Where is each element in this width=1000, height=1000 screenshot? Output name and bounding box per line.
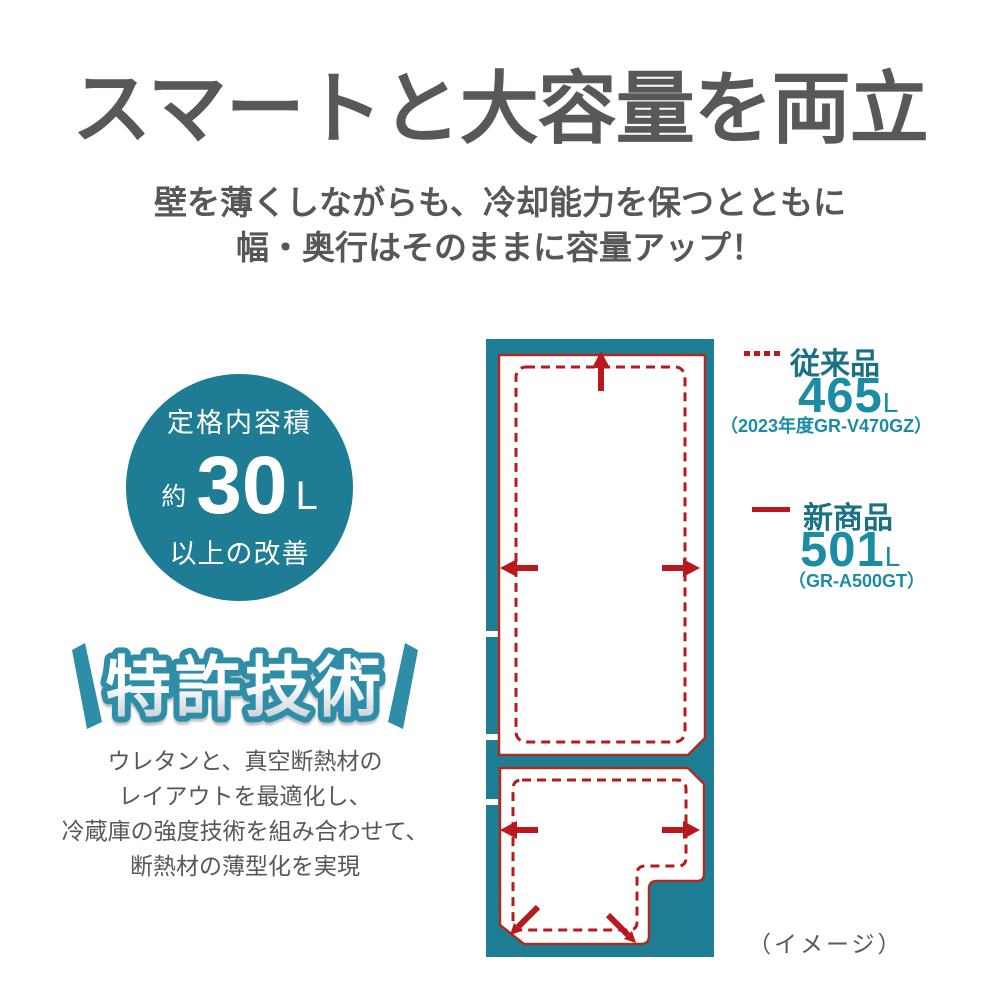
legend-new-solid-line-icon xyxy=(752,507,790,512)
door-seam xyxy=(486,799,498,805)
image-disclaimer: （イメージ） xyxy=(748,925,904,959)
capacity-circle-top-label: 定格内容積 xyxy=(167,401,312,440)
legend-old-model: （2023年度GR-V470GZ） xyxy=(720,412,932,438)
description-line: ウレタンと、真空断熱材の xyxy=(55,744,435,779)
fridge-capacity-diagram xyxy=(486,339,714,957)
capacity-approx-prefix: 約 xyxy=(161,477,186,513)
description-line: レイアウトを最適化し、 xyxy=(55,779,435,814)
technology-description: ウレタンと、真空断熱材の レイアウトを最適化し、 冷蔵庫の強度技術を組み合わせて… xyxy=(55,744,435,884)
marketing-page: スマートと大容量を両立 壁を薄くしながらも、冷却能力を保つとともに 幅・奥行はそ… xyxy=(0,0,1000,1000)
badge-right-slash-icon xyxy=(388,643,418,729)
subtitle-line-1: 壁を薄くしながらも、冷却能力を保つとともに xyxy=(0,180,1000,225)
door-seam xyxy=(486,734,498,740)
upper-compartment-new-interior xyxy=(499,355,705,755)
capacity-unit: L xyxy=(295,474,317,519)
subtitle-line-2: 幅・奥行はそのままに容量アップ！ xyxy=(0,225,1000,270)
description-line: 断熱材の薄型化を実現 xyxy=(55,849,435,884)
capacity-circle-badge: 定格内容積 約 30 L 以上の改善 xyxy=(126,374,353,601)
badge-left-slash-icon xyxy=(72,643,102,729)
patent-technology-badge: 特許技術 xyxy=(55,630,435,738)
legend-new-model: （GR-A500GT） xyxy=(788,567,925,593)
capacity-circle-bottom-label: 以上の改善 xyxy=(170,532,310,571)
description-line: 冷蔵庫の強度技術を組み合わせて、 xyxy=(55,814,435,849)
door-seam xyxy=(486,631,498,637)
page-subtitle: 壁を薄くしながらも、冷却能力を保つとともに 幅・奥行はそのままに容量アップ！ xyxy=(0,180,1000,270)
page-title: スマートと大容量を両立 xyxy=(0,44,1000,159)
capacity-value: 30 xyxy=(196,442,287,530)
capacity-circle-value-row: 約 30 L xyxy=(161,442,317,530)
patent-badge-label: 特許技術 xyxy=(105,650,385,724)
legend-old-dashed-line-icon xyxy=(744,351,780,356)
